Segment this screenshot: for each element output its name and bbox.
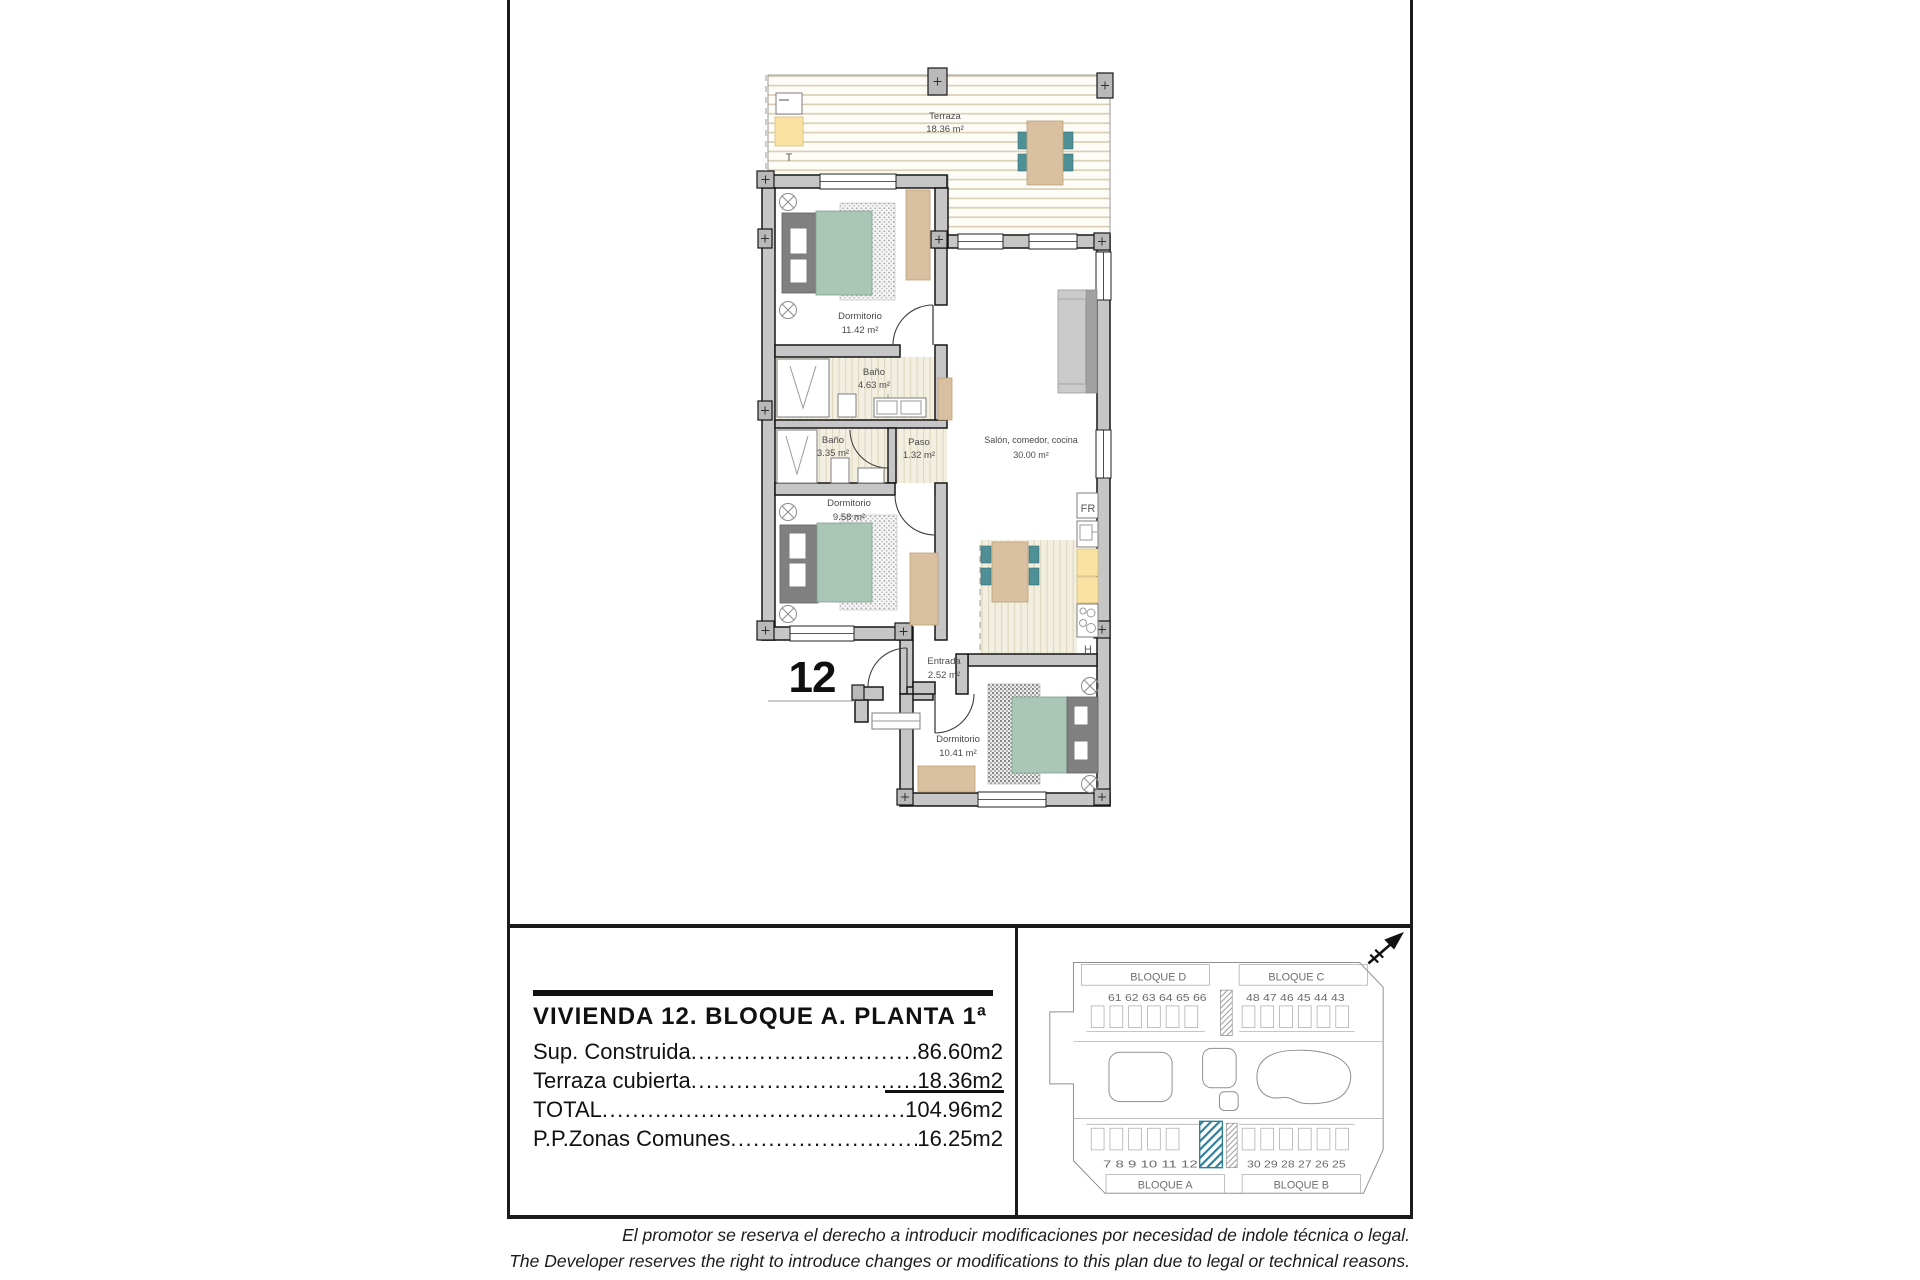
units-bottom-right: 30 29 28 27 26 25 [1247, 1160, 1346, 1171]
north-arrow-icon [1368, 933, 1403, 964]
wardrobe [906, 190, 930, 280]
site-plan: BLOQUE D 61 62 63 64 65 66 BLOQUE C 48 4… [1018, 928, 1410, 1215]
terraza-area: 18.36 m² [926, 124, 964, 135]
floor-plan: T Terraza 18.36 m² [508, 0, 1412, 927]
sofa-seat [1058, 296, 1086, 388]
plan-sheet: { "plan": { "unit_number": "12", "rooms"… [0, 0, 1920, 1280]
disclaimer-en: The Developer reserves the right to intr… [508, 1248, 1410, 1274]
room-dormitorio-2: Dormitorio 9.58 m² [780, 498, 939, 625]
svg-text:30.00 m²: 30.00 m² [1013, 450, 1049, 460]
svg-text:1.32 m²: 1.32 m² [903, 450, 935, 461]
stairs-bottom [1226, 1123, 1237, 1167]
fridge-label: FR [1081, 503, 1096, 515]
unit-row [1239, 1124, 1354, 1150]
amenities [1073, 1041, 1383, 1118]
unit-row [1239, 1006, 1354, 1032]
leader-dots: ........................................… [602, 1097, 905, 1123]
terraza-name: Terraza [929, 111, 961, 122]
svg-text:11.42 m²: 11.42 m² [842, 325, 879, 336]
svg-text:2.52 m²: 2.52 m² [928, 670, 960, 681]
bench [918, 766, 975, 792]
title-rule [533, 990, 993, 996]
info-panel: VIVIENDA 12. BLOQUE A. PLANTA 1ª Sup. Co… [508, 927, 1017, 1218]
svg-text:3.35 m²: 3.35 m² [817, 448, 849, 459]
room-dormitorio-3: Dormitorio 10.41 m² [918, 678, 1099, 793]
sofa-back [1086, 290, 1097, 393]
unit-row [1086, 1124, 1199, 1150]
terrace-storage-icon [776, 93, 802, 114]
unit-number: 12 [789, 653, 836, 702]
bloque-c: BLOQUE C 48 47 46 45 44 43 [1239, 964, 1367, 1031]
row-value: 86.60m2 [917, 1039, 1003, 1065]
toilet [831, 458, 849, 483]
bloque-a: 7 8 9 10 11 12 BLOQUE A [1086, 1121, 1224, 1193]
svg-text:9.58 m²: 9.58 m² [833, 512, 865, 523]
svg-text:Paso: Paso [908, 437, 930, 448]
kitchen-appliances: FR H [1077, 493, 1098, 656]
leader-dots: ........................................… [730, 1126, 917, 1152]
svg-text:BLOQUE B: BLOQUE B [1274, 1179, 1329, 1191]
row-label: Sup. Construida [533, 1039, 691, 1065]
disclaimer: El promotor se reserva el derecho a intr… [508, 1222, 1410, 1274]
svg-text:4.63 m²: 4.63 m² [858, 380, 890, 391]
highlighted-unit-12 [1200, 1121, 1223, 1167]
bloque-d: BLOQUE D 61 62 63 64 65 66 [1081, 964, 1209, 1031]
svg-text:Dormitorio: Dormitorio [838, 311, 882, 322]
terrace-yellow-cabinet [775, 117, 803, 146]
row-label: Terraza cubierta [533, 1068, 691, 1094]
leader-dots: ........................................… [691, 1068, 918, 1094]
row-value: 104.96m2 [905, 1097, 1003, 1123]
counter [1077, 577, 1098, 603]
bed [816, 211, 872, 295]
unit-row [1086, 1006, 1204, 1032]
spa [1203, 1048, 1237, 1087]
pool-right [1257, 1050, 1351, 1103]
svg-text:Salón, comedor, cocina: Salón, comedor, cocina [984, 435, 1078, 445]
spa-small [1219, 1092, 1238, 1111]
row-label: P.P.Zonas Comunes [533, 1126, 730, 1152]
leader-dots: ........................................… [691, 1039, 918, 1065]
table-row: TOTAL...................................… [533, 1097, 1003, 1126]
toilet [838, 394, 856, 417]
svg-text:BLOQUE C: BLOQUE C [1268, 971, 1324, 983]
row-label: TOTAL [533, 1097, 602, 1123]
svg-text:Dormitorio: Dormitorio [936, 734, 980, 745]
counter [1077, 549, 1098, 576]
bed [1012, 697, 1069, 773]
bloque-b: 30 29 28 27 26 25 BLOQUE B [1239, 1124, 1360, 1193]
units-top-right: 48 47 46 45 44 43 [1246, 993, 1345, 1004]
units-top-left: 61 62 63 64 65 66 [1108, 993, 1207, 1004]
area-table: Sup. Construida.........................… [533, 1039, 1003, 1155]
svg-text:Baño: Baño [822, 435, 844, 446]
svg-text:BLOQUE D: BLOQUE D [1130, 971, 1186, 983]
svg-text:Baño: Baño [863, 367, 885, 378]
row-value: 16.25m2 [917, 1126, 1003, 1152]
bed [817, 523, 872, 602]
pool-left [1109, 1052, 1172, 1101]
cabinet [910, 553, 938, 625]
svg-text:Entrada: Entrada [927, 656, 961, 667]
hall-cabinet [938, 378, 952, 420]
svg-text:BLOQUE A: BLOQUE A [1138, 1179, 1194, 1191]
plan-title: VIVIENDA 12. BLOQUE A. PLANTA 1ª [533, 1003, 1003, 1031]
terrace-t-label: T [786, 152, 793, 164]
stairs-top [1220, 990, 1232, 1035]
units-bottom-left: 7 8 9 10 11 12 [1103, 1160, 1198, 1171]
table-row: Sup. Construida.........................… [533, 1039, 1003, 1068]
disclaimer-es: El promotor se reserva el derecho a intr… [508, 1222, 1410, 1248]
svg-text:10.41 m²: 10.41 m² [939, 748, 977, 759]
svg-text:Dormitorio: Dormitorio [827, 498, 871, 509]
sink [858, 468, 884, 483]
hob-label: H [1084, 644, 1092, 656]
sum-underline [885, 1090, 1004, 1093]
table-row: P.P.Zonas Comunes.......................… [533, 1126, 1003, 1155]
